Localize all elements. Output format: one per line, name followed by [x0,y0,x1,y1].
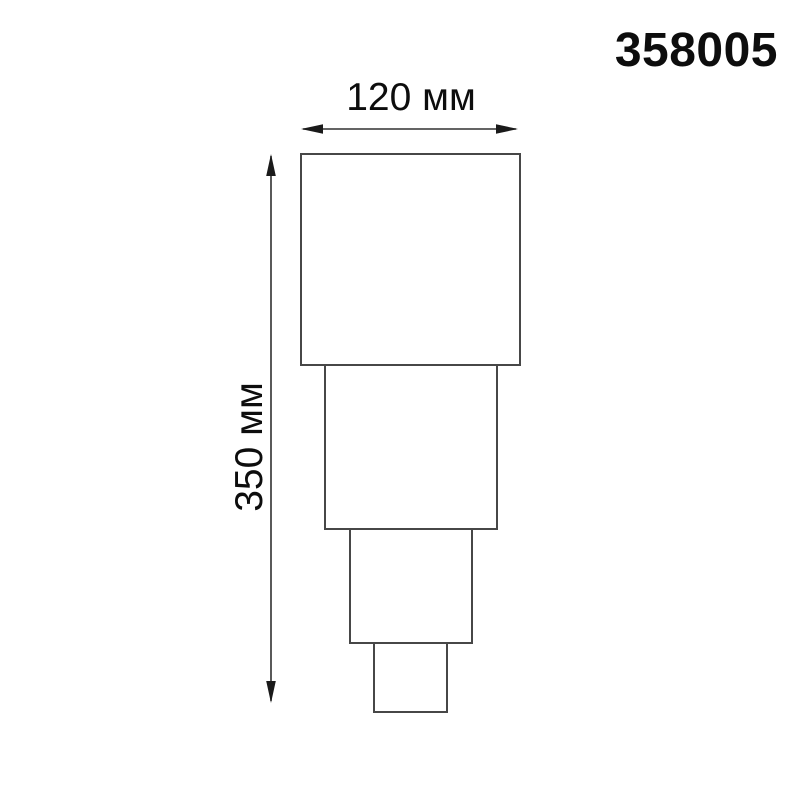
arrowhead-left-icon [301,124,323,134]
product-code: 358005 [615,24,778,77]
height-dimension: 350 мм [228,154,276,703]
product-dimension-diagram: 120 мм 350 мм 358005 [0,0,800,800]
fixture-outline [301,154,520,712]
fixture-tier-1 [301,154,520,365]
fixture-tier-4 [374,643,447,712]
arrowhead-right-icon [496,124,518,134]
fixture-tier-2 [325,365,497,529]
arrowhead-down-icon [266,681,276,703]
height-dimension-label: 350 мм [228,382,271,512]
width-dimension: 120 мм [301,76,518,134]
arrowhead-up-icon [266,154,276,176]
fixture-tier-3 [350,529,472,643]
diagram-canvas: 120 мм 350 мм 358005 [0,0,800,800]
width-dimension-label: 120 мм [346,76,476,119]
